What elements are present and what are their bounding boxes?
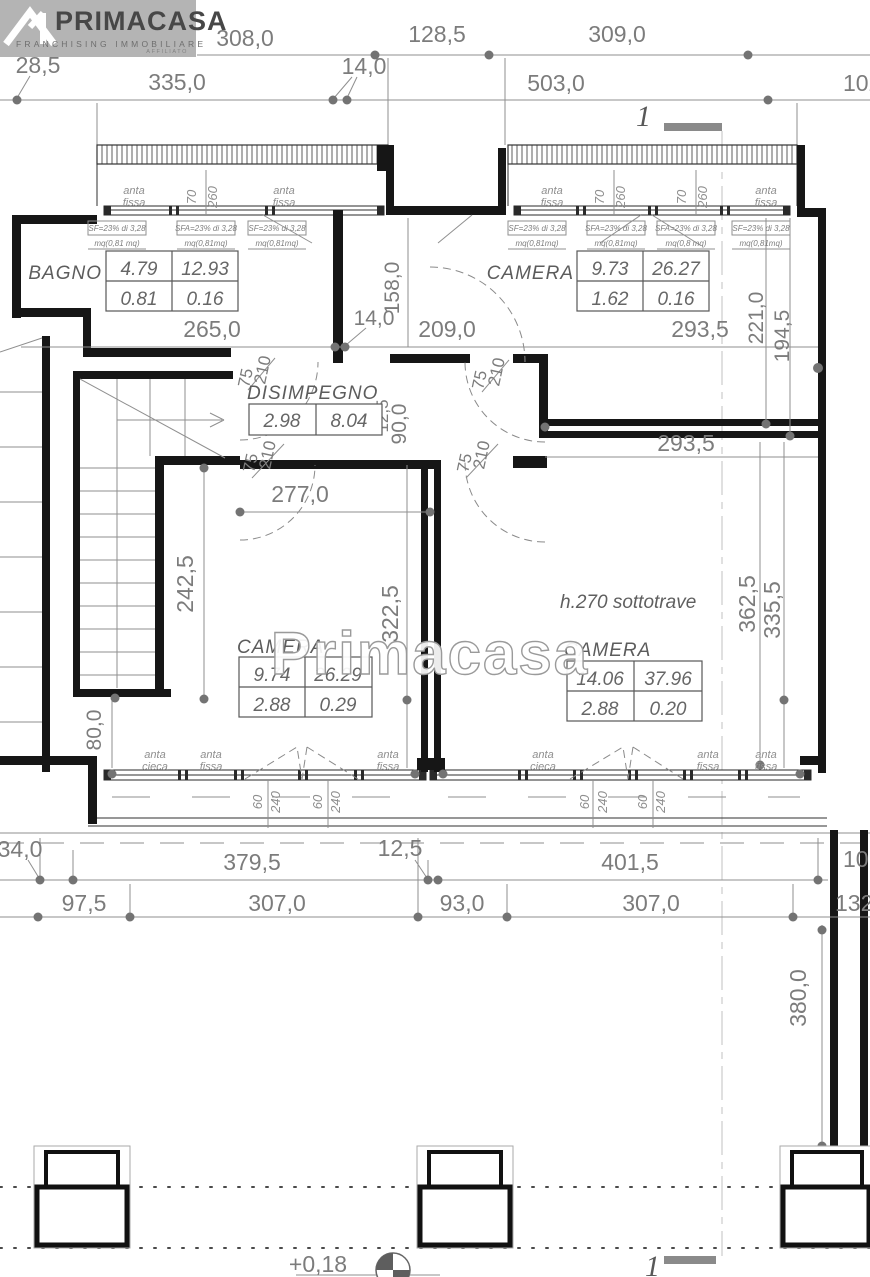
window-240-label: 240 bbox=[328, 790, 343, 813]
window-60-label: 60 bbox=[577, 794, 592, 809]
anta-label: anta bbox=[755, 185, 776, 197]
section-marker-bottom: 1 bbox=[645, 1250, 716, 1277]
cieca-label: cieca bbox=[530, 761, 556, 773]
window-240-label: 240 bbox=[595, 790, 610, 813]
section-number-bottom: 1 bbox=[645, 1250, 660, 1277]
dim-362: 362,5 bbox=[734, 575, 760, 633]
dim-34: 34,0 bbox=[0, 836, 42, 862]
bottom-dimension-labels: 34,0 379,5 12,5 401,5 10 97,5 307,0 93,0… bbox=[0, 835, 870, 1027]
table-cell: 4.79 bbox=[121, 259, 158, 280]
fissa-label: fissa bbox=[123, 197, 146, 209]
anta-label: anta bbox=[273, 185, 294, 197]
logo-badge: AFFILIATO bbox=[146, 49, 188, 55]
dim-80: 80,0 bbox=[83, 710, 106, 751]
room-bagno: BAGNO 4.79 12.93 0.81 0.16 bbox=[28, 251, 238, 311]
dim-293a: 293,5 bbox=[671, 316, 729, 342]
pillar bbox=[780, 1146, 870, 1248]
window-260-label: 260 bbox=[695, 185, 710, 208]
hatched-wall-bands bbox=[97, 145, 797, 206]
window-60-label: 60 bbox=[310, 794, 325, 809]
sf-line1: SF=23% di 3,28 bbox=[732, 224, 790, 233]
level-value: +0,18 bbox=[289, 1251, 347, 1277]
level-marker: +0,18 bbox=[289, 1251, 440, 1277]
dim-293b: 293,5 bbox=[657, 430, 715, 456]
window-60-label: 60 bbox=[635, 794, 650, 809]
anta-label: anta bbox=[144, 749, 165, 761]
anta-label: anta bbox=[200, 749, 221, 761]
room-name: DISIMPEGNO bbox=[247, 383, 378, 404]
dim-14-top: 14,0 bbox=[342, 53, 387, 79]
window-260-label: 260 bbox=[613, 185, 628, 208]
dim-221: 221,0 bbox=[745, 292, 768, 345]
window-240-label: 240 bbox=[653, 790, 668, 813]
primacasa-logo: PRIMACASA FRANCHISING IMMOBILIARE AFFILI… bbox=[0, 0, 196, 57]
room-name: CAMERA bbox=[487, 263, 574, 284]
anta-label: anta bbox=[123, 185, 144, 197]
table-cell: 8.04 bbox=[331, 411, 368, 432]
sf-box: SFA=23% di 3,28 mq(0,81mq) bbox=[175, 221, 237, 249]
sf-boxes: SF=23% di 3,28 mq(0,81 mq) SFA=23% di 3,… bbox=[88, 221, 790, 249]
sf-line1: SF=23% di 3,28 bbox=[508, 224, 566, 233]
bottom-structures bbox=[0, 1146, 870, 1248]
room-name: BAGNO bbox=[28, 263, 102, 284]
sf-line2: mq(0,81mq) bbox=[739, 239, 782, 248]
door1-height: 210 bbox=[250, 354, 274, 386]
sf-box: SFA=23% di 3,28 mq(0,81mq) bbox=[585, 221, 647, 249]
fissa-label: fissa bbox=[541, 197, 564, 209]
dim-158: 158,0 bbox=[381, 262, 404, 315]
anta-label: anta bbox=[697, 749, 718, 761]
watermark: Primacasa bbox=[271, 620, 589, 687]
table-cell: 0.29 bbox=[320, 695, 357, 716]
dim-335: 335,0 bbox=[148, 69, 206, 95]
room-disimpegno: DISIMPEGNO 2.98 8.04 bbox=[247, 383, 382, 435]
sf-line2: mq(0,81mq) bbox=[255, 239, 298, 248]
table-cell: 2.88 bbox=[253, 695, 291, 716]
table-cell: 0.16 bbox=[658, 289, 695, 310]
logo-tagline: FRANCHISING IMMOBILIARE bbox=[16, 39, 206, 49]
dim-93: 93,0 bbox=[440, 890, 485, 916]
fissa-label: fissa bbox=[755, 197, 778, 209]
dim-128: 128,5 bbox=[408, 21, 466, 47]
dim-209: 209,0 bbox=[418, 316, 476, 342]
room-camera-ne: CAMERA 9.73 26.27 1.62 0.16 bbox=[487, 251, 709, 311]
dim-335b: 335,5 bbox=[759, 581, 785, 639]
dim-102: 102 bbox=[843, 70, 870, 96]
floor-plan-page: PRIMACASA FRANCHISING IMMOBILIARE AFFILI… bbox=[0, 0, 870, 1277]
sf-line2: mq(0,8 mq) bbox=[666, 239, 707, 248]
dim-90: 90,0 bbox=[388, 404, 411, 445]
fissa-label: fissa bbox=[377, 761, 400, 773]
table-cell: 2.98 bbox=[263, 411, 301, 432]
dim-401: 401,5 bbox=[601, 849, 659, 875]
fissa-label: fissa bbox=[273, 197, 296, 209]
sf-box: SFA=23% di 3,28 mq(0,8 mq) bbox=[655, 221, 717, 249]
bottom-dimension-rows bbox=[0, 838, 870, 1146]
section-number-top: 1 bbox=[636, 100, 651, 133]
table-cell: 0.16 bbox=[187, 289, 224, 310]
sf-line1: SF=23% di 3,28 bbox=[88, 224, 146, 233]
dim-309: 309,0 bbox=[588, 21, 646, 47]
dim-307b: 307,0 bbox=[622, 890, 680, 916]
anta-label: anta bbox=[755, 749, 776, 761]
dim-10: 10 bbox=[843, 846, 869, 872]
table-cell: 2.88 bbox=[581, 699, 619, 720]
window-70-label: 70 bbox=[592, 189, 607, 204]
table-cell: 9.73 bbox=[592, 259, 629, 280]
sf-line2: mq(0,81mq) bbox=[594, 239, 637, 248]
table-cell: 0.20 bbox=[650, 699, 687, 720]
table-cell: 12.93 bbox=[181, 259, 229, 280]
table-cell: 0.81 bbox=[121, 289, 158, 310]
dim-307a: 307,0 bbox=[248, 890, 306, 916]
dim-380: 380,0 bbox=[785, 969, 811, 1027]
window-260-label: 260 bbox=[205, 185, 220, 208]
pillar bbox=[417, 1146, 513, 1248]
door2-height: 210 bbox=[484, 356, 508, 388]
dim-242: 242,5 bbox=[172, 555, 198, 613]
table-cell: 37.96 bbox=[644, 669, 692, 690]
window-240-label: 240 bbox=[268, 790, 283, 813]
door4-height: 210 bbox=[469, 439, 493, 471]
logo-brand: PRIMACASA bbox=[55, 6, 228, 37]
staircase bbox=[0, 338, 225, 722]
sf-box: SF=23% di 3,28 mq(0,81mq) bbox=[248, 221, 306, 249]
window-70-label: 70 bbox=[674, 189, 689, 204]
anta-label: anta bbox=[377, 749, 398, 761]
sf-line1: SFA=23% di 3,28 bbox=[585, 224, 647, 233]
sf-box: SF=23% di 3,28 mq(0,81 mq) bbox=[88, 221, 146, 249]
level-symbol-icon bbox=[376, 1253, 410, 1277]
dim-503: 503,0 bbox=[527, 70, 585, 96]
dim-12c: 12,5 bbox=[378, 835, 423, 861]
fissa-label: fissa bbox=[755, 761, 778, 773]
cieca-label: cieca bbox=[142, 761, 168, 773]
sf-line1: SF=23% di 3,28 bbox=[248, 224, 306, 233]
beam-height-note: h.270 sottotrave bbox=[560, 592, 696, 613]
sf-line2: mq(0,81 mq) bbox=[94, 239, 140, 248]
dim-265: 265,0 bbox=[183, 316, 241, 342]
sf-line2: mq(0,81mq) bbox=[515, 239, 558, 248]
fissa-label: fissa bbox=[697, 761, 720, 773]
pillar bbox=[34, 1146, 130, 1248]
dim-194: 194,5 bbox=[771, 310, 794, 363]
fissa-label: fissa bbox=[200, 761, 223, 773]
dim-277: 277,0 bbox=[271, 481, 329, 507]
sf-line1: SFA=23% di 3,28 bbox=[655, 224, 717, 233]
anta-label: anta bbox=[541, 185, 562, 197]
table-cell: 1.62 bbox=[592, 289, 629, 310]
section-marker-top: 1 bbox=[636, 100, 722, 133]
dim-379: 379,5 bbox=[223, 849, 281, 875]
floor-plan-drawing: 308,0 128,5 309,0 28,5 335,0 14,0 503,0 … bbox=[0, 0, 870, 1277]
window-60-label: 60 bbox=[250, 794, 265, 809]
bottom-windows bbox=[0, 770, 870, 843]
table-cell: 26.27 bbox=[651, 259, 701, 280]
anta-label: anta bbox=[532, 749, 553, 761]
dim-97: 97,5 bbox=[62, 890, 107, 916]
sf-box: SF=23% di 3,28 mq(0,81mq) bbox=[508, 221, 566, 249]
sf-line1: SFA=23% di 3,28 bbox=[175, 224, 237, 233]
sf-line2: mq(0,81mq) bbox=[184, 239, 227, 248]
window-70-label: 70 bbox=[184, 189, 199, 204]
sf-box: SF=23% di 3,28 mq(0,81mq) bbox=[732, 221, 790, 249]
dim-132: 132, bbox=[835, 890, 870, 916]
